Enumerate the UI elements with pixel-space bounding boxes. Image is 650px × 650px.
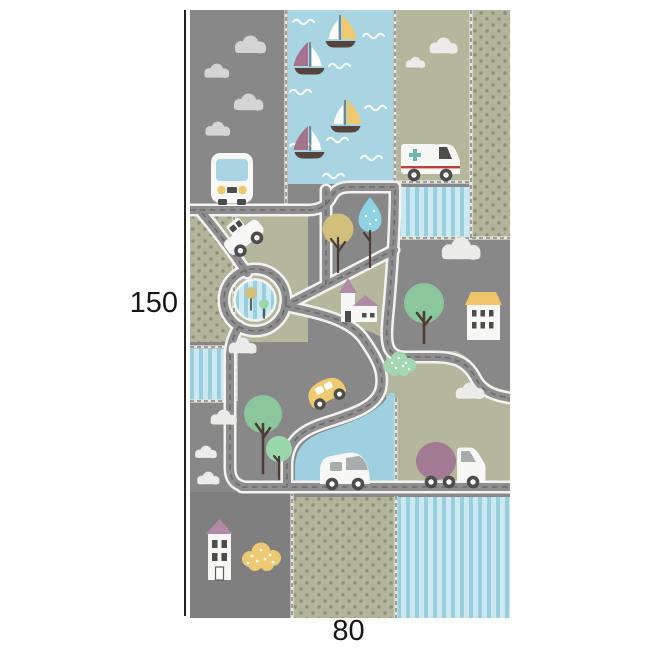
width-dimension-label: 80	[191, 617, 506, 646]
striped-block-right	[398, 187, 471, 238]
dotted-strip-right	[471, 10, 510, 238]
house-icon	[465, 292, 502, 340]
height-dimension-label: 150	[124, 289, 178, 318]
bus-icon	[211, 153, 253, 205]
dotted-block-bottom	[292, 497, 396, 618]
rug-illustration	[190, 10, 510, 618]
striped-block-bottom	[397, 497, 510, 618]
height-dimension-line	[184, 10, 186, 616]
product-dimension-image: 150 80	[0, 0, 650, 650]
roundabout	[235, 280, 276, 321]
